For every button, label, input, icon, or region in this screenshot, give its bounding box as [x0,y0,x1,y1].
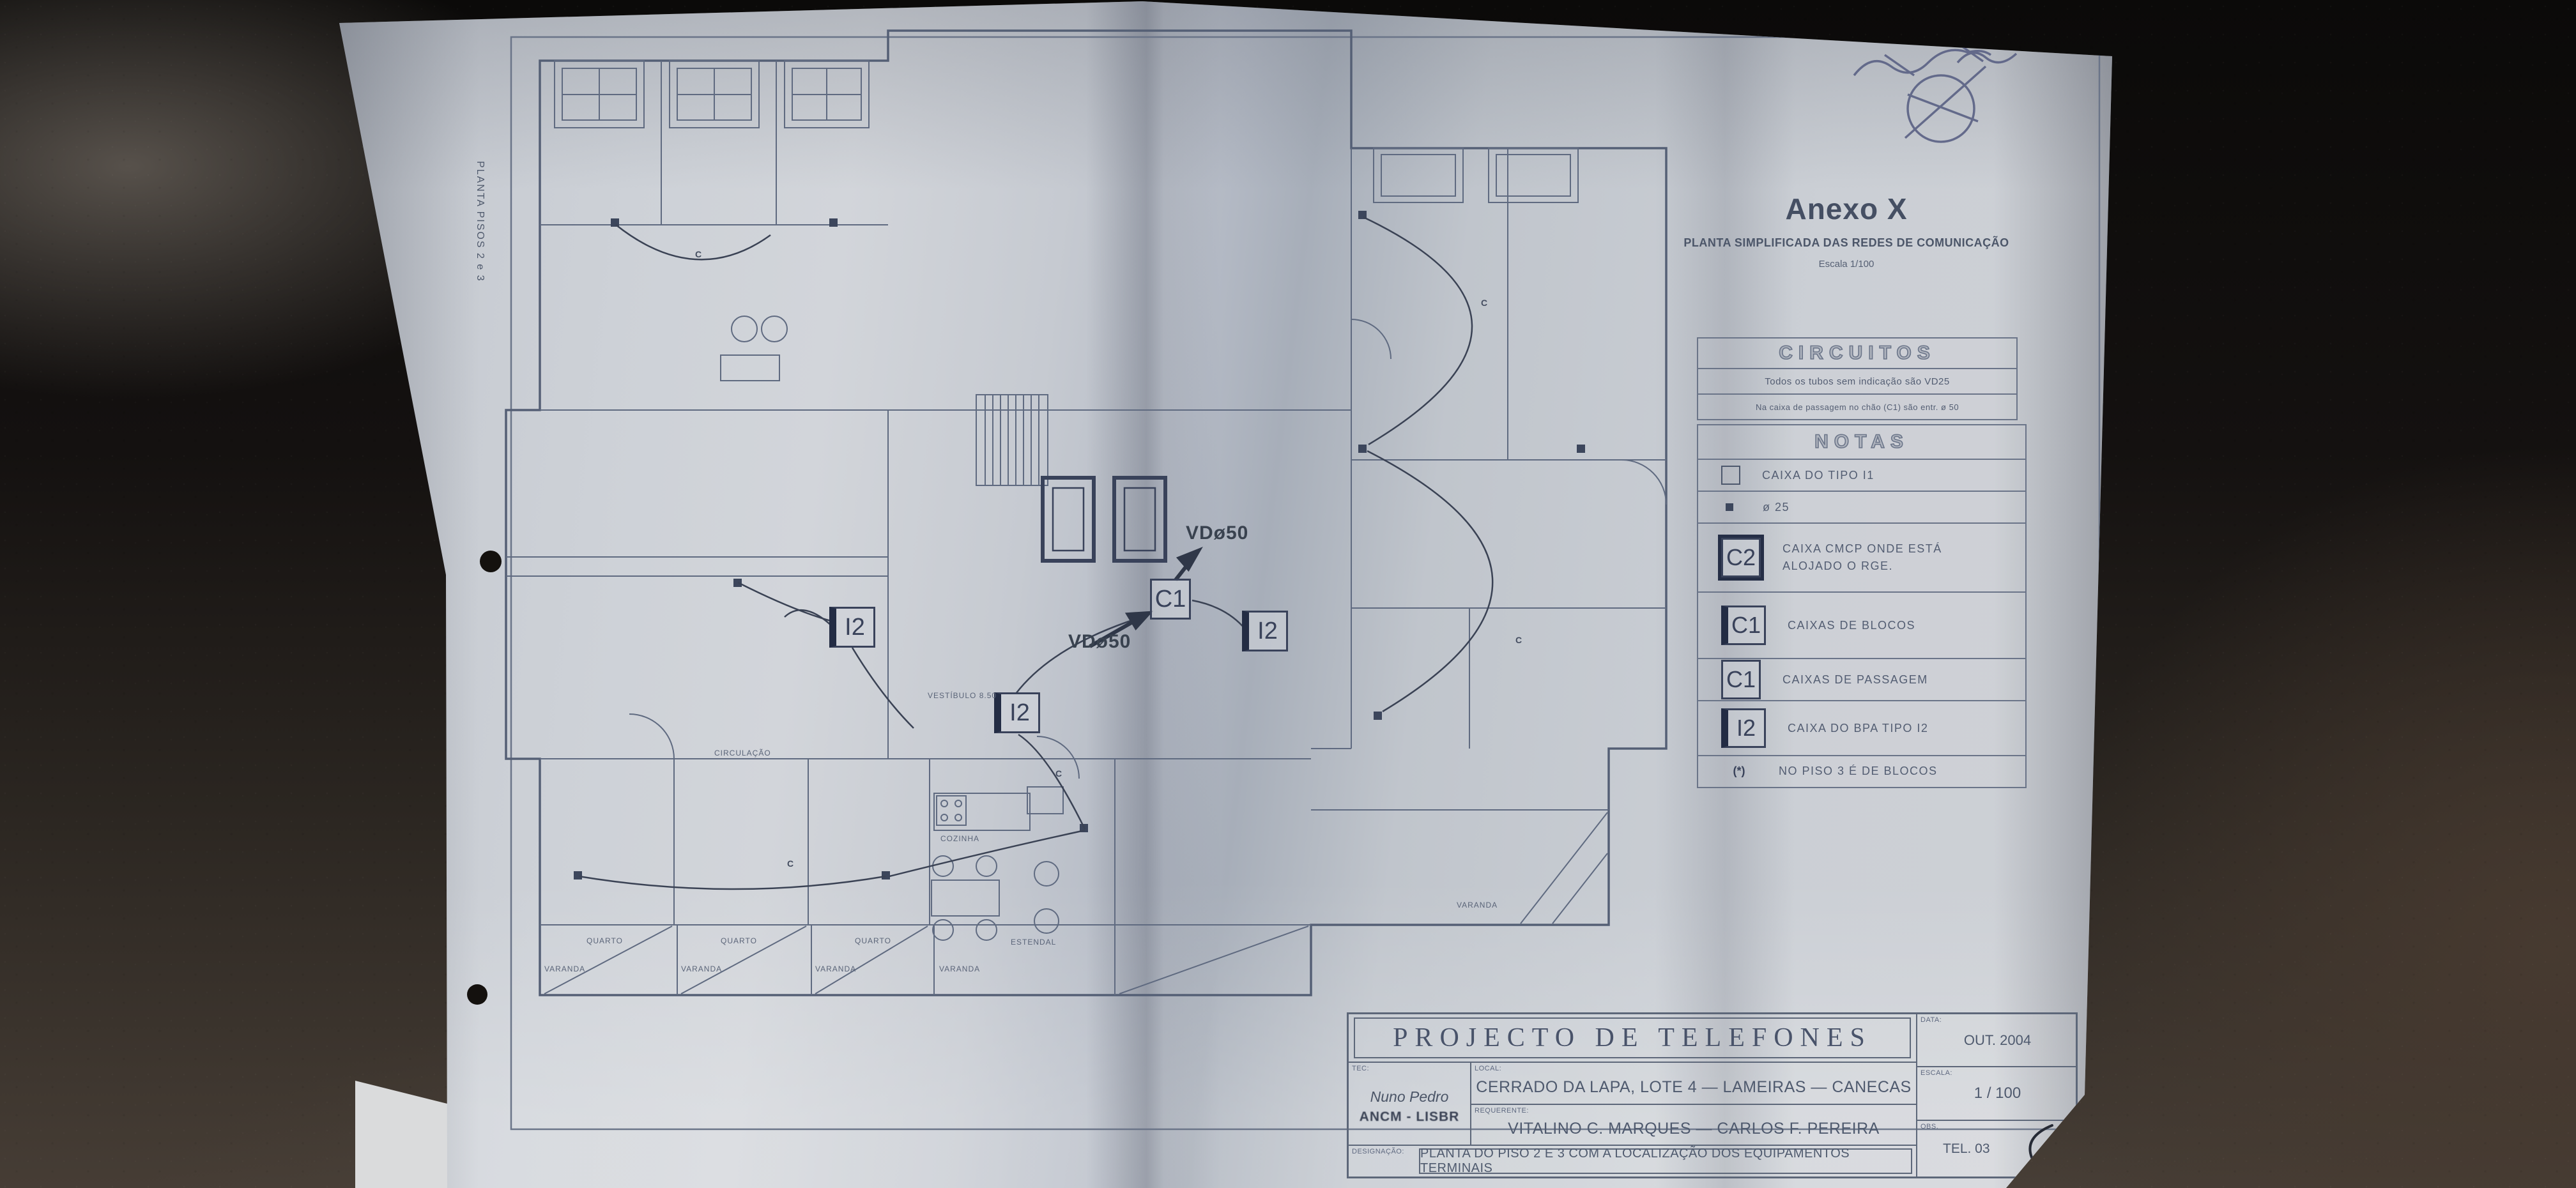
requerente-value: VITALINO C. MARQUES — CARLOS F. PEREIRA [1471,1105,1916,1145]
side-plan-label: PLANTA PISOS 2 e 3 [474,161,486,282]
local-value: CERRADO DA LAPA, LOTE 4 — LAMEIRAS — CAN… [1471,1063,1916,1104]
c1-thick-box-icon: C1 [1721,605,1766,645]
plan-label: VDø50 [1186,522,1248,544]
plan-label: I2 [829,607,875,648]
annex-subtitle: PLANTA SIMPLIFICADA DAS REDES DE COMUNIC… [1661,236,2032,250]
local-cell: LOCAL: CERRADO DA LAPA, LOTE 4 — LAMEIRA… [1471,1063,1917,1105]
plan-label: VDø50 [1068,631,1131,653]
notas-row: CAIXA DO TIPO I1 [1698,460,2025,492]
i2-box-icon: I2 [1721,708,1766,748]
plan-label: QUARTO [586,936,623,945]
cable-runs [579,217,1492,889]
c2-box-icon: C2 [1721,538,1761,577]
escala-value: 1 / 100 [1917,1067,2078,1120]
escala-cell: ESCALA: 1 / 100 [1917,1067,2078,1121]
plan-label: C [787,858,793,869]
plan-label: COZINHA [940,834,979,843]
notas-row: (*) NO PISO 3 É DE BLOCOS [1698,756,2025,786]
titleblock-title-cell: PROJECTO DE TELEFONES [1349,1014,1917,1063]
pen-scribble-icon [1854,46,2016,142]
plan-label: C1 [1150,579,1191,620]
plan-label: VARANDA [1457,901,1498,910]
date-cell: DATA: OUT. 2004 [1917,1014,2078,1067]
notas-row: I2 CAIXA DO BPA TIPO I2 [1698,701,2025,756]
plan-label: VESTÍBULO 8.50 [928,691,997,700]
plan-label: ESTENDAL [1011,938,1056,947]
notas-row: ø 25 [1698,492,2025,524]
plan-label: I2 [1242,611,1288,651]
notas-box: NOTAS CAIXA DO TIPO I1 ø 25 C2 CAIXA CMC… [1697,424,2027,788]
photo-background: PLANTA PISOS 2 e 3 VDø50VDø50C1I2I2I2QUA… [0,0,2576,1188]
designacao-cell: DESIGNAÇÃO: PLANTA DO PISO 2 E 3 COM A L… [1349,1146,1917,1177]
plan-label: QUARTO [855,936,891,945]
plan-label: C [1481,298,1487,308]
annex-title: Anexo X [1661,192,2032,226]
circuitos-note-1: Todos os tubos sem indicação são VD25 [1698,369,2016,395]
requerente-cell: REQUERENTE: VITALINO C. MARQUES — CARLOS… [1471,1105,1917,1146]
annex-heading: Anexo X PLANTA SIMPLIFICADA DAS REDES DE… [1661,192,2032,270]
annex-scale-note: Escala 1/100 [1661,259,2032,270]
outer-walls [506,31,1666,995]
technician-stamp: ANCM - LISBR [1360,1109,1460,1125]
title-block: PROJECTO DE TELEFONES DATA: OUT. 2004 TE… [1347,1012,2078,1178]
plan-label: C [1515,635,1522,645]
plan-label: CIRCULAÇÃO [714,749,771,758]
circuitos-note-2: Na caixa de passagem no chão (C1) são en… [1698,395,2016,419]
plan-label: VARANDA [939,964,980,973]
notas-row: C1 CAIXAS DE BLOCOS [1698,593,2025,659]
telephone-outlets [574,211,1585,880]
plan-label: I2 [994,692,1040,733]
plan-label: VARANDA [681,964,722,973]
circuitos-title: CIRCUITOS [1698,339,2016,369]
elevator-shafts [1043,478,1165,561]
circuitos-box: CIRCUITOS Todos os tubos sem indicação s… [1697,337,2018,420]
plan-label: C [1055,768,1062,779]
plan-label: C [695,249,701,259]
asterisk-note-icon: (*) [1721,765,1757,778]
notas-title: NOTAS [1698,425,2025,460]
plan-label: VARANDA [815,964,856,973]
interior-walls [506,61,1666,995]
date-value: OUT. 2004 [1917,1014,2078,1066]
designacao-value: PLANTA DO PISO 2 E 3 COM A LOCALIZAÇÃO D… [1419,1148,1912,1174]
punch-holes [467,551,502,1005]
technician-name: Nuno Pedro [1370,1088,1449,1106]
c1-plain-box-icon: C1 [1721,660,1761,699]
technician-cell: TEC: Nuno Pedro ANCM - LISBR [1349,1063,1471,1146]
plan-label: VARANDA [544,964,585,973]
square-filled-icon [1726,503,1733,511]
square-outline-icon [1721,466,1740,485]
notas-row: C1 CAIXAS DE PASSAGEM [1698,659,2025,701]
notas-row: C2 CAIXA CMCP ONDE ESTÁ ALOJADO O RGE. [1698,524,2025,593]
plan-label: QUARTO [721,936,757,945]
project-title: PROJECTO DE TELEFONES [1354,1017,1911,1058]
